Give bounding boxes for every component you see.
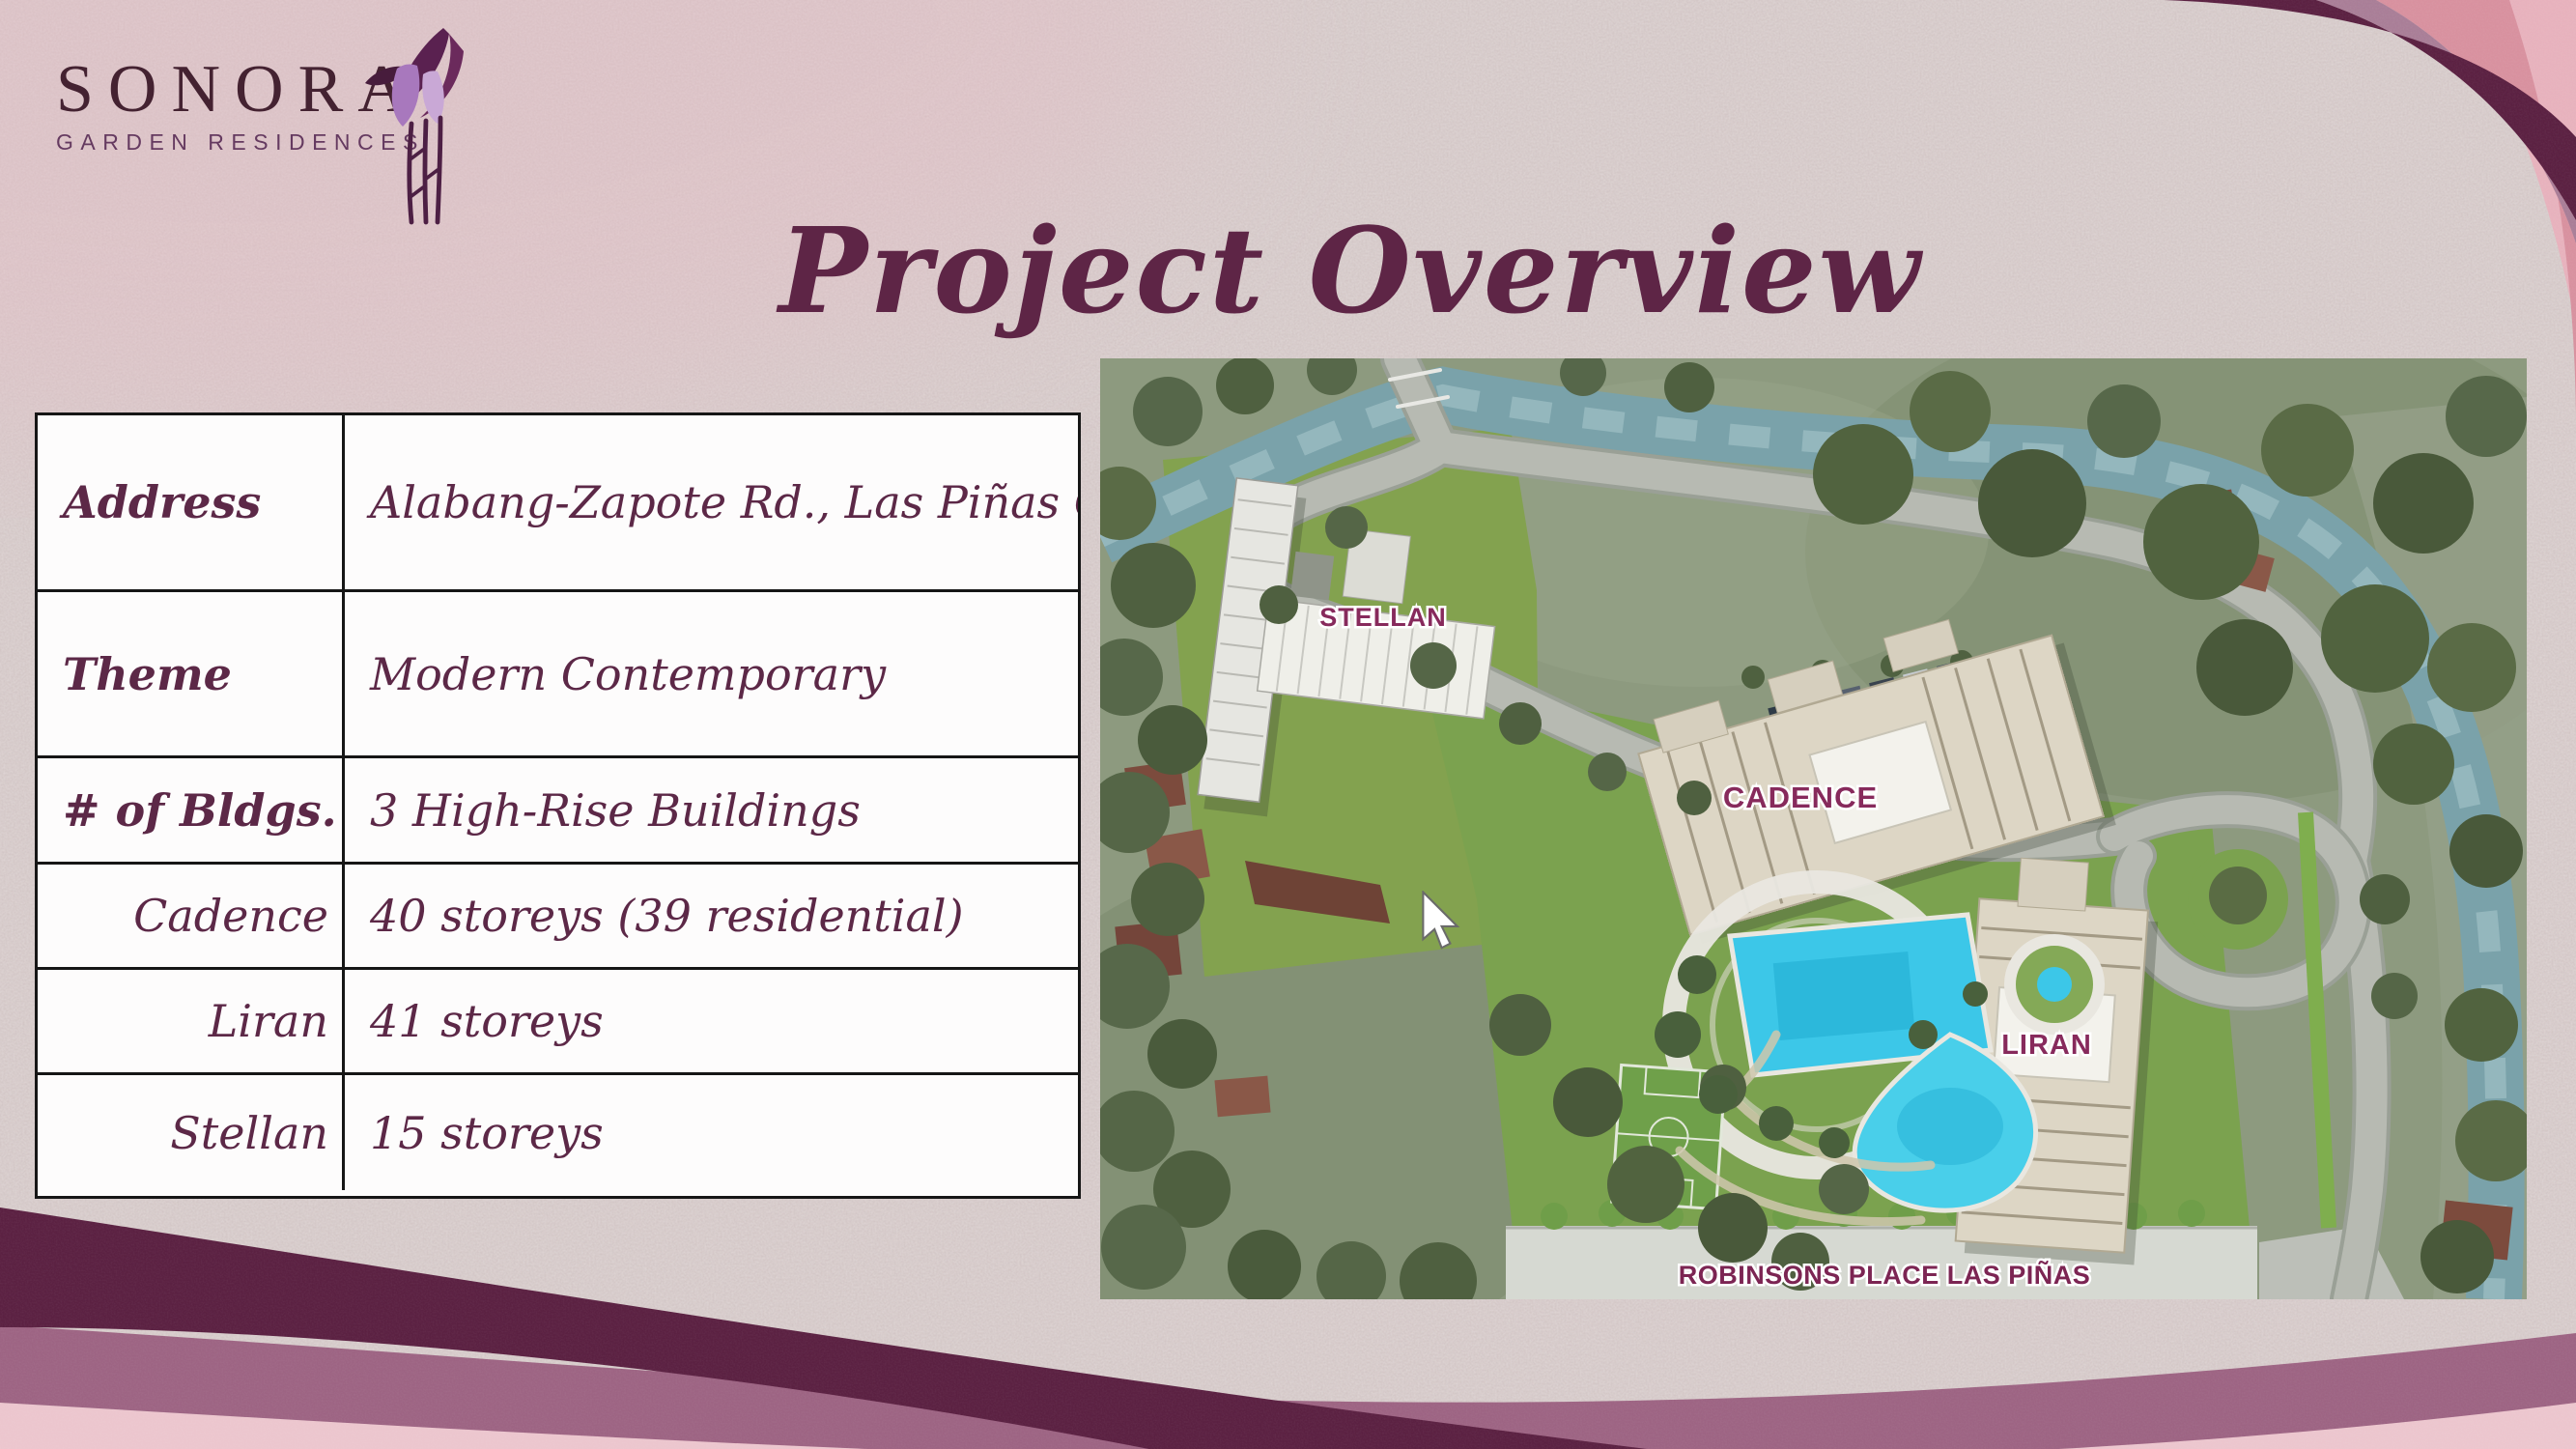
info-table: Address Alabang-Zapote Rd., Las Piñas Ci… [35,412,1081,1199]
row-address-label: Address [38,415,345,592]
row-stellan-label: Stellan [38,1075,345,1190]
robinsons-map-label: ROBINSONS PLACE LAS PIÑAS [1679,1260,2091,1290]
row-liran-label: Liran [38,970,345,1075]
row-theme-value: Modern Contemporary [345,592,1078,758]
page-title: Project Overview [778,201,1921,340]
cadence-map-label: CADENCE [1723,781,1878,814]
row-address-value: Alabang-Zapote Rd., Las Piñas City [345,415,1078,592]
mouse-cursor [1420,891,1478,956]
logo-flower-icon [354,25,498,228]
row-cadence-value: 40 storeys (39 residential) [345,865,1078,970]
row-liran-value: 41 storeys [345,970,1078,1075]
stellan-map-label: STELLAN [1319,603,1447,632]
logo: SONORA GARDEN RESIDENCES [56,56,462,230]
row-cadence-label: Cadence [38,865,345,970]
site-plan-image: STELLAN CADENCE LIRAN ROBINSONS PLACE LA… [1100,358,2527,1299]
row-bldgs-label: # of Bldgs. [38,758,345,865]
row-bldgs-value: 3 High-Rise Buildings [345,758,1078,865]
liran-map-label: LIRAN [2001,1030,2092,1061]
row-theme-label: Theme [38,592,345,758]
slide: { "logo": { "name": "SONORA", "tagline":… [0,0,2576,1449]
row-stellan-value: 15 storeys [345,1075,1078,1190]
